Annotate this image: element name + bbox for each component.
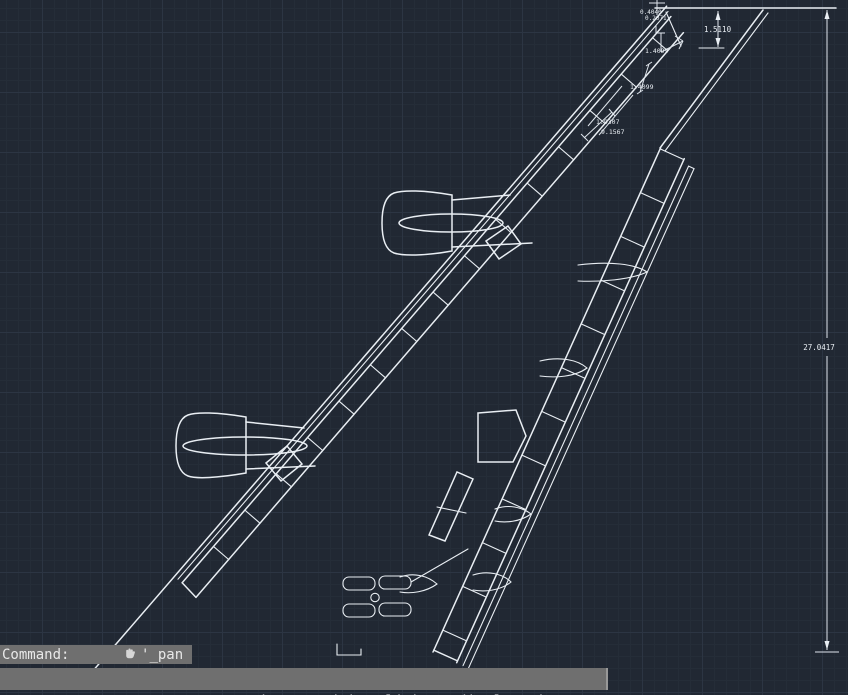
- pylon-line: [246, 422, 304, 428]
- dimension-tip-chord: 1.5110: [704, 11, 732, 47]
- drawing-canvas[interactable]: 27.0417 1.5110 0.4040 0.2071: [0, 0, 848, 695]
- engine-inlet-ellipse: [183, 437, 307, 455]
- dimension-annotations: 27.0417 1.5110 0.4040 0.2071: [581, 0, 839, 652]
- command-entry[interactable]: '_pan: [141, 647, 183, 663]
- dimension-le-break: 1.9307 9.1567: [581, 86, 633, 141]
- aileron-panel: [429, 472, 473, 541]
- section-bracket: [337, 644, 361, 655]
- svg-text:0.2071: 0.2071: [645, 15, 667, 22]
- engine-nacelle-inboard: [176, 413, 315, 481]
- svg-text:9.1567: 9.1567: [601, 128, 625, 136]
- dimension-semi-span: 27.0417: [803, 10, 839, 652]
- pylon-mount-plate: [486, 226, 521, 259]
- cad-viewport[interactable]: 27.0417 1.5110 0.4040 0.2071: [0, 0, 848, 695]
- command-line[interactable]: Command: '_pan: [0, 645, 192, 664]
- svg-text:1.4099: 1.4099: [645, 47, 669, 55]
- dimension-slat-inner: 1.4099: [630, 62, 654, 94]
- callout-leader: [411, 549, 468, 582]
- detail-callout-blocks: [343, 549, 468, 617]
- status-bar: Press ESC or ENTER to exit, or right-cli…: [0, 668, 608, 690]
- tip-leader: [666, 12, 681, 46]
- engine-inlet-ellipse: [399, 214, 503, 232]
- flap-track-box: [478, 410, 526, 462]
- svg-text:1.4099: 1.4099: [630, 83, 654, 91]
- wing-leading-edge-assembly: [95, 6, 689, 688]
- wing-drawing: [95, 6, 836, 688]
- svg-text:1.5110: 1.5110: [704, 25, 732, 34]
- callout-circle: [371, 593, 379, 601]
- svg-text:27.0417: 27.0417: [803, 343, 835, 352]
- command-prompt: Command:: [2, 647, 69, 663]
- svg-text:1.9307: 1.9307: [596, 118, 620, 126]
